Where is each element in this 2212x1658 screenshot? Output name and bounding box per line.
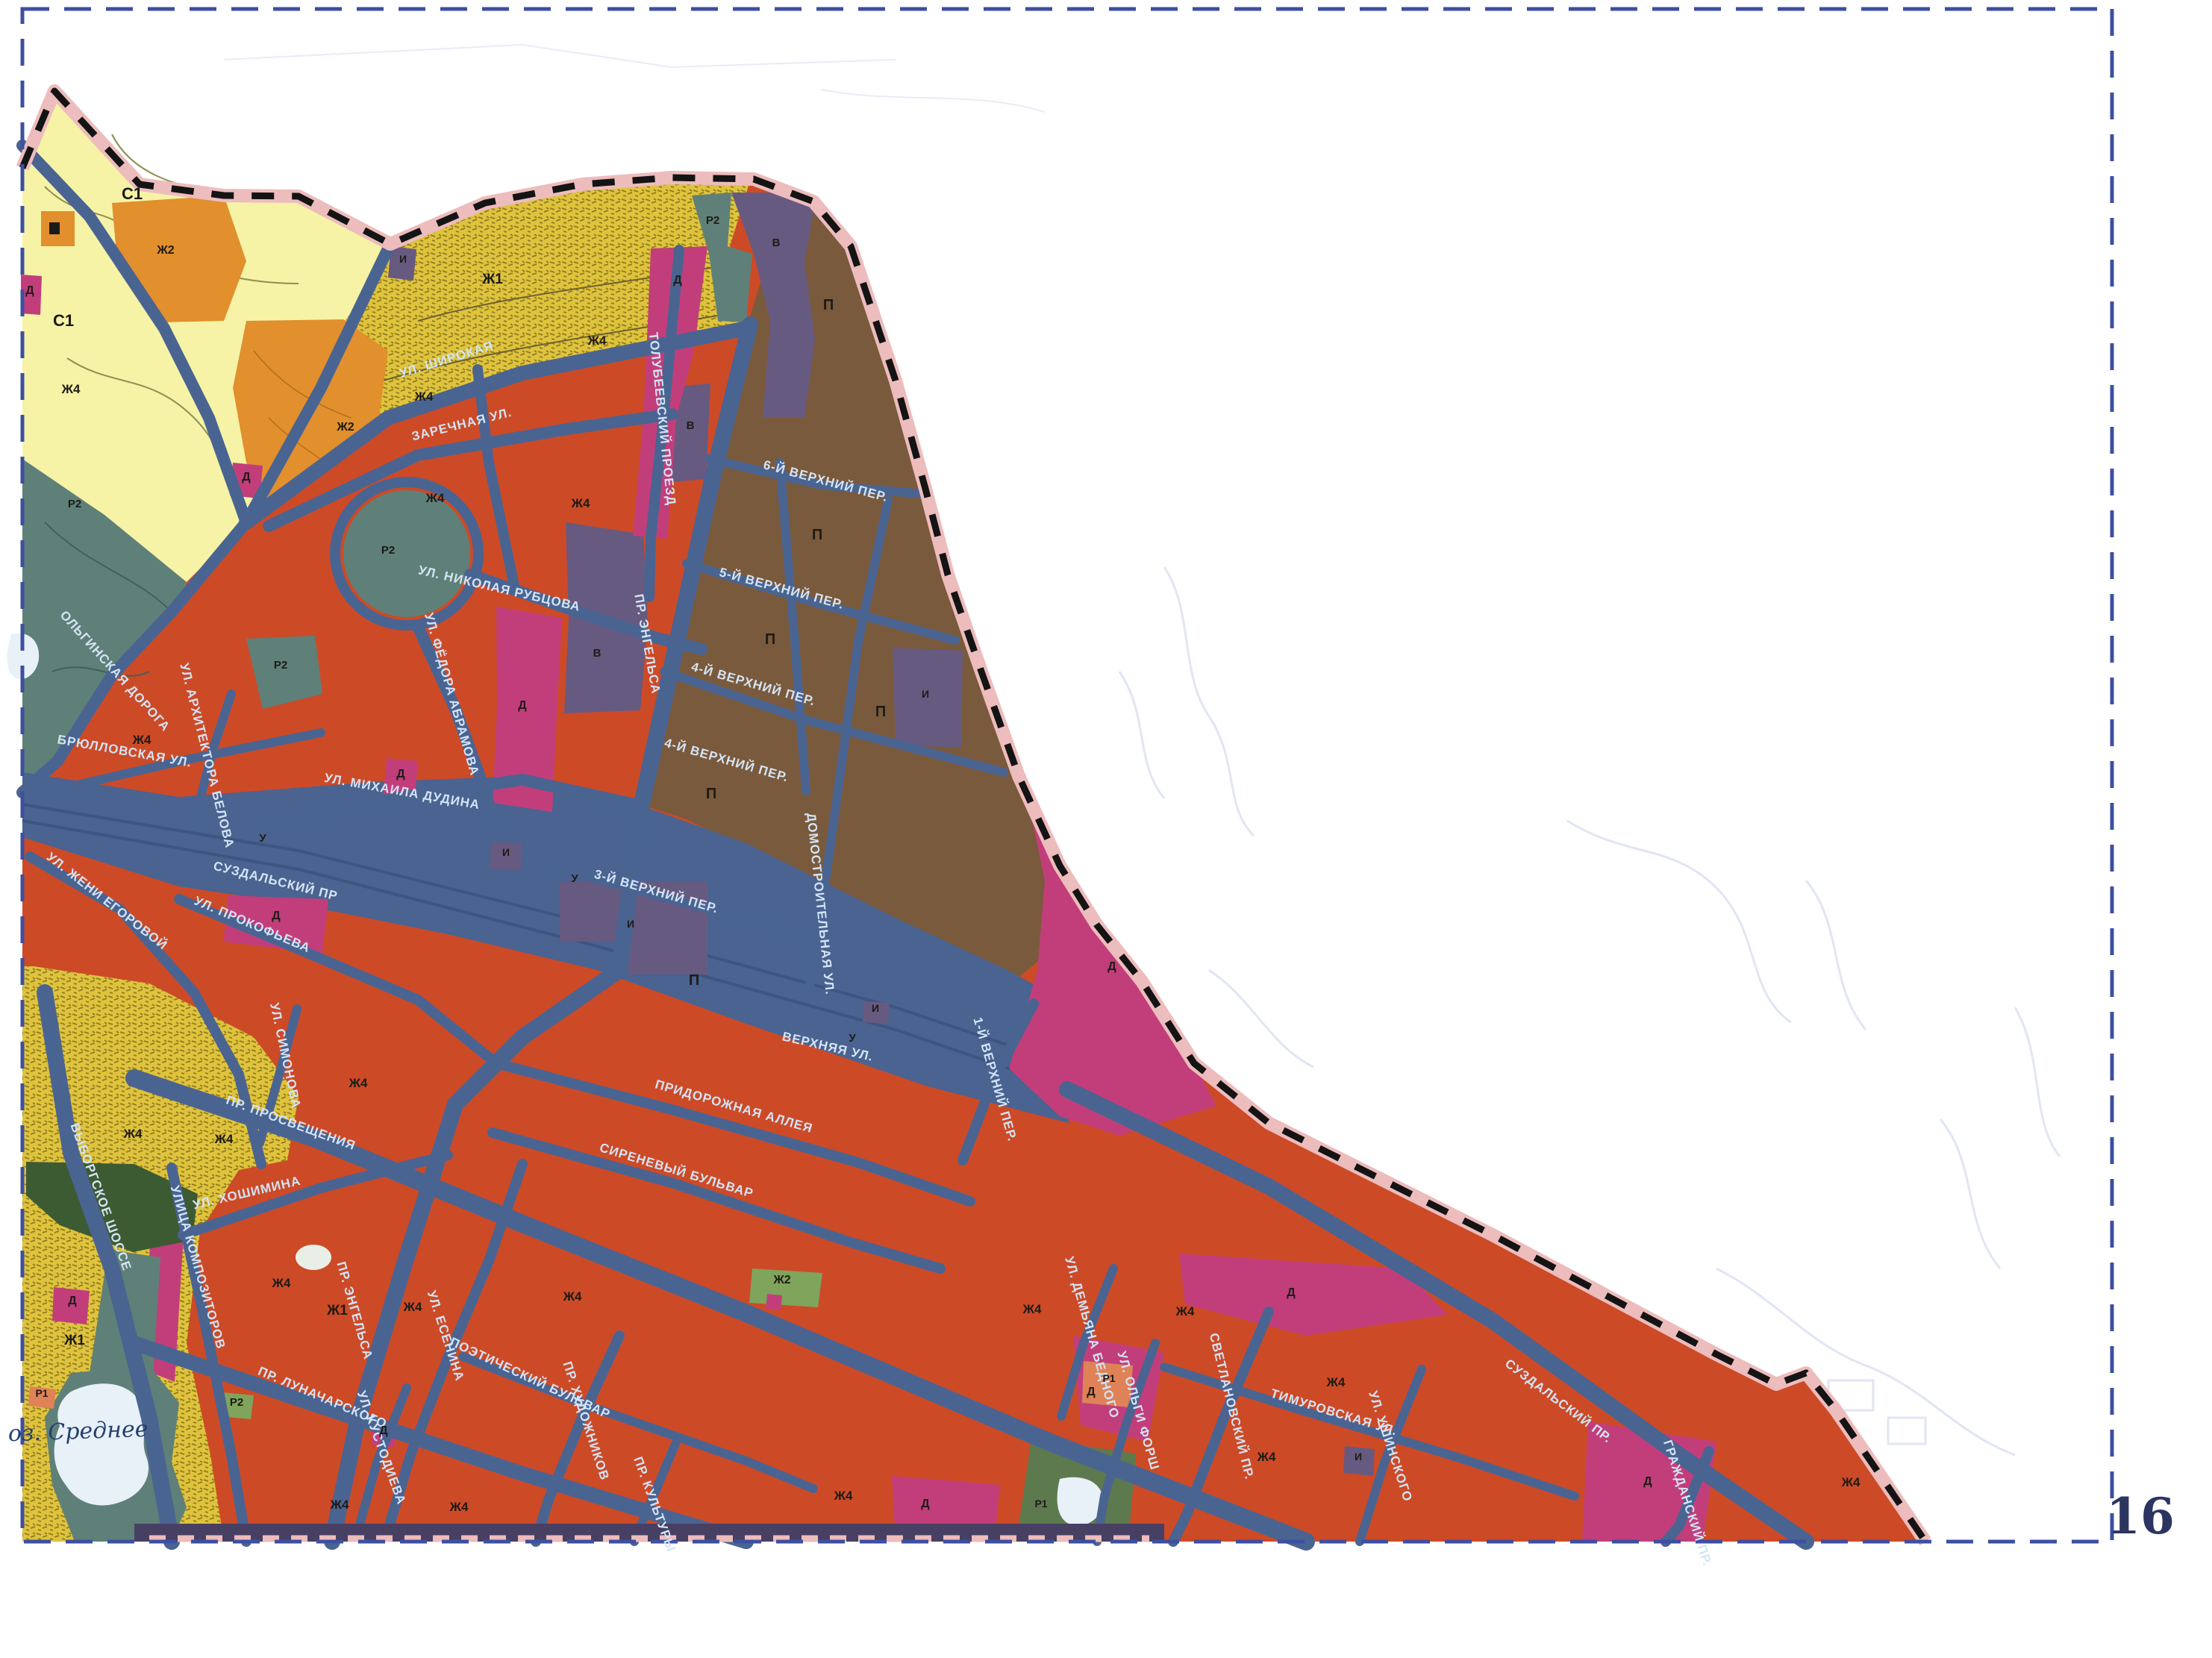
zone-label-И: И [502, 846, 510, 858]
zone-label-Ж4: Ж4 [587, 334, 607, 348]
zone-label-Р2: Р2 [274, 659, 287, 672]
zone-label-Р2: Р2 [68, 498, 81, 510]
zone-label-Ж4: Ж4 [1257, 1450, 1276, 1464]
zone-label-Д: Д [1643, 1475, 1652, 1488]
zone-label-Д: Д [379, 1424, 388, 1437]
zone-label-Ж2: Ж2 [336, 421, 354, 434]
zone-label-У: У [849, 1032, 856, 1045]
zone-label-Ж4: Ж4 [425, 491, 445, 505]
zone-label-Д: Д [921, 1498, 930, 1510]
scanned-zoning-map-page: УЛ. ШИРОКАЯЗАРЕЧНАЯ УЛ.УЛ. НИКОЛАЯ РУБЦО… [0, 0, 2212, 1658]
zone-label-П: П [875, 704, 886, 720]
zone-label-Ж4: Ж4 [132, 733, 151, 747]
zone-label-Ж4: Ж4 [1326, 1375, 1346, 1389]
zone-label-Д: Д [272, 910, 281, 922]
zone-label-Ж4: Ж4 [61, 382, 81, 396]
zone-label-Р1: Р1 [1102, 1372, 1115, 1384]
lake-label: оз. Среднее [7, 1416, 149, 1448]
page-number: 16 [2106, 1487, 2175, 1545]
zone-label-П: П [706, 786, 716, 802]
zone-label-И: И [922, 688, 929, 700]
zone-label-Ж4: Ж4 [1022, 1302, 1042, 1316]
zone-label-Ж4: Ж4 [123, 1127, 143, 1141]
zone-r2-park-circle [343, 490, 470, 617]
pond-small [296, 1245, 331, 1270]
zone-label-Ж4: Ж4 [349, 1076, 368, 1090]
zone-label-Ж2: Ж2 [772, 1274, 790, 1286]
zone-label-Ж4: Ж4 [330, 1498, 349, 1512]
zone-label-Р2: Р2 [381, 544, 395, 557]
zone-label-В: В [772, 237, 781, 249]
ghost-line [1806, 880, 1866, 1030]
ghost-line [1567, 821, 1791, 1022]
zone-label-П: П [823, 297, 834, 313]
zone-label-И: И [872, 1002, 879, 1014]
zone-label-У: У [259, 832, 266, 845]
zone-label-В: В [593, 647, 602, 660]
zone-label-С1: С1 [122, 184, 143, 203]
zone-label-Ж2: Ж2 [156, 244, 174, 257]
zone-label-Д: Д [1107, 960, 1116, 973]
building-mark [49, 222, 60, 234]
zone-label-Ж4: Ж4 [403, 1300, 422, 1314]
zone-label-Р2: Р2 [706, 214, 719, 227]
zone-label-Ж4: Ж4 [834, 1489, 853, 1503]
zone-label-Ж4: Ж4 [214, 1132, 234, 1146]
zoning-map: УЛ. ШИРОКАЯЗАРЕЧНАЯ УЛ.УЛ. НИКОЛАЯ РУБЦО… [0, 0, 2212, 1658]
zone-label-В: В [687, 419, 695, 432]
ghost-line [1940, 1007, 2060, 1268]
zone-label-У: У [571, 872, 578, 885]
zone-label-С1: С1 [53, 311, 74, 330]
zone-label-Ж4: Ж4 [1841, 1475, 1860, 1489]
zone-label-Р1: Р1 [1034, 1498, 1047, 1510]
zone-label-Д: Д [673, 274, 682, 287]
zone-label-Д: Д [242, 471, 251, 484]
ghost-line [224, 45, 896, 67]
zone-label-Ж4: Ж4 [1175, 1304, 1195, 1318]
zone-label-Д: Д [396, 768, 405, 780]
lake-label-layer: оз. Среднее [7, 1416, 149, 1448]
zone-d-business-tiny [766, 1294, 782, 1310]
zone-label-Ж4: Ж4 [449, 1500, 469, 1514]
ghost-line [1209, 970, 1313, 1067]
zone-label-И: И [399, 253, 407, 265]
zone-label-Ж4: Ж4 [414, 390, 434, 404]
zone-label-Ж1: Ж1 [481, 272, 503, 287]
zone-label-Ж4: Ж4 [563, 1289, 582, 1304]
zone-label-Д: Д [25, 284, 34, 297]
ghost-line [1164, 567, 1254, 836]
zone-label-Ж4: Ж4 [571, 496, 590, 510]
ghost-line [1119, 672, 1164, 798]
zone-label-П: П [689, 972, 699, 989]
zone-label-Ж1: Ж1 [326, 1303, 348, 1318]
ghost-line [821, 90, 1045, 112]
zone-label-П: П [765, 631, 775, 648]
zone-label-Д: Д [68, 1295, 77, 1307]
zone-label-И: И [1355, 1451, 1362, 1463]
zone-label-Р1: Р1 [35, 1387, 48, 1399]
zone-label-Д: Д [1087, 1386, 1096, 1398]
zone-label-Ж1: Ж1 [63, 1333, 85, 1348]
zone-label-П: П [812, 527, 822, 543]
zone-label-Д: Д [1287, 1286, 1296, 1299]
zone-label-И: И [627, 918, 634, 930]
zone-label-Ж4: Ж4 [272, 1276, 291, 1290]
zone-label-Р2: Р2 [230, 1396, 243, 1409]
zone-label-Д: Д [518, 699, 527, 712]
